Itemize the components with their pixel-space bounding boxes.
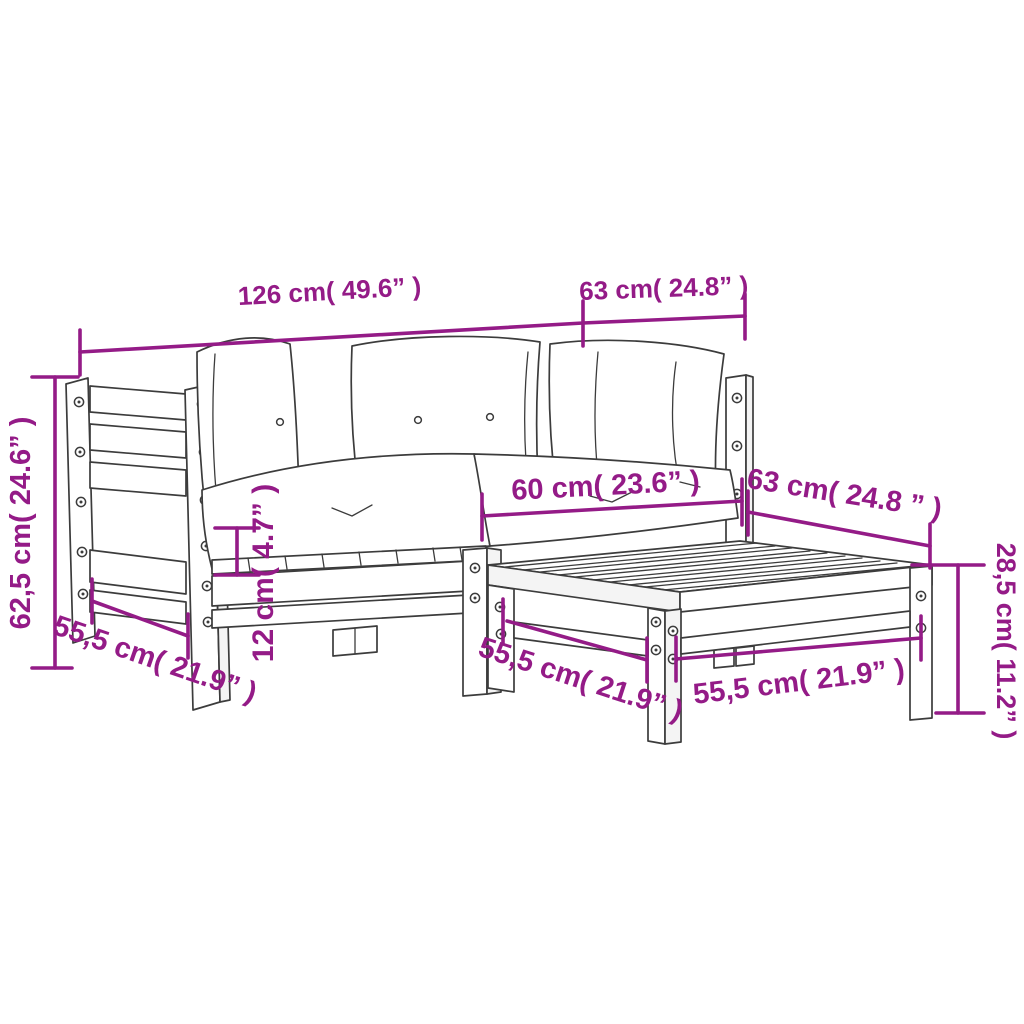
armrest-side-rail <box>90 550 186 594</box>
screw-icon <box>651 617 660 626</box>
screw-icon <box>76 497 85 506</box>
product-dimension-diagram: 126 cm( 49.6” ) 63 cm( 24.8” ) 62,5 cm( … <box>0 0 1024 1024</box>
screw-icon <box>916 591 925 600</box>
screw-icon <box>75 447 84 456</box>
cushion-button <box>277 419 284 426</box>
screw-icon <box>470 593 479 602</box>
screw-icon <box>668 626 677 635</box>
screw-icon <box>78 589 87 598</box>
screw-icon <box>74 397 83 406</box>
armrest-slat <box>90 462 186 496</box>
screw-icon <box>651 645 660 654</box>
screw-icon <box>732 441 741 450</box>
dim-label-cushion-thickness: 12 cm( 4.7” ) <box>247 484 280 662</box>
cushion-button <box>487 414 494 421</box>
screw-icon <box>202 581 211 590</box>
dim-label-sofa-total-width: 126 cm( 49.6” ) <box>237 271 422 311</box>
dim-label-sofa-height: 62,5 cm( 24.6” ) <box>5 417 37 630</box>
diagram-canvas: 126 cm( 49.6” ) 63 cm( 24.8” ) 62,5 cm( … <box>0 0 1024 1024</box>
armrest-slat <box>90 386 186 420</box>
dim-label-stool-height: 28,5 cm( 11.2” ) <box>991 543 1021 740</box>
dim-label-corner-section-width: 63 cm( 24.8” ) <box>579 270 749 306</box>
screw-icon <box>470 563 479 572</box>
armrest-slat <box>90 424 186 458</box>
screw-icon <box>77 547 86 556</box>
cushion-button <box>415 417 422 424</box>
stool-front-leg <box>648 608 665 744</box>
screw-icon <box>732 393 741 402</box>
